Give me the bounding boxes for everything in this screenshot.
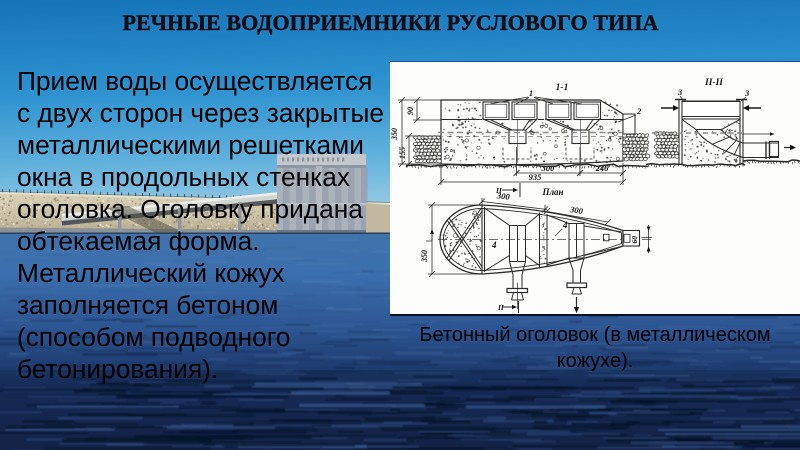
svg-text:1: 1	[529, 88, 533, 98]
svg-text:3: 3	[677, 87, 683, 97]
svg-text:4: 4	[562, 220, 568, 230]
svg-text:1-1: 1-1	[556, 83, 569, 93]
svg-text:300: 300	[568, 204, 584, 216]
svg-text:246: 246	[595, 163, 610, 173]
svg-text:План: План	[541, 187, 563, 197]
svg-text:3: 3	[744, 88, 750, 98]
svg-text:350: 350	[420, 250, 429, 263]
svg-text:4: 4	[491, 240, 497, 250]
svg-text:II-II: II-II	[704, 78, 723, 88]
svg-text:300: 300	[541, 163, 556, 173]
svg-text:935: 935	[529, 172, 543, 182]
svg-text:2: 2	[636, 106, 642, 116]
svg-text:60: 60	[630, 236, 639, 244]
svg-text:II: II	[495, 186, 503, 195]
